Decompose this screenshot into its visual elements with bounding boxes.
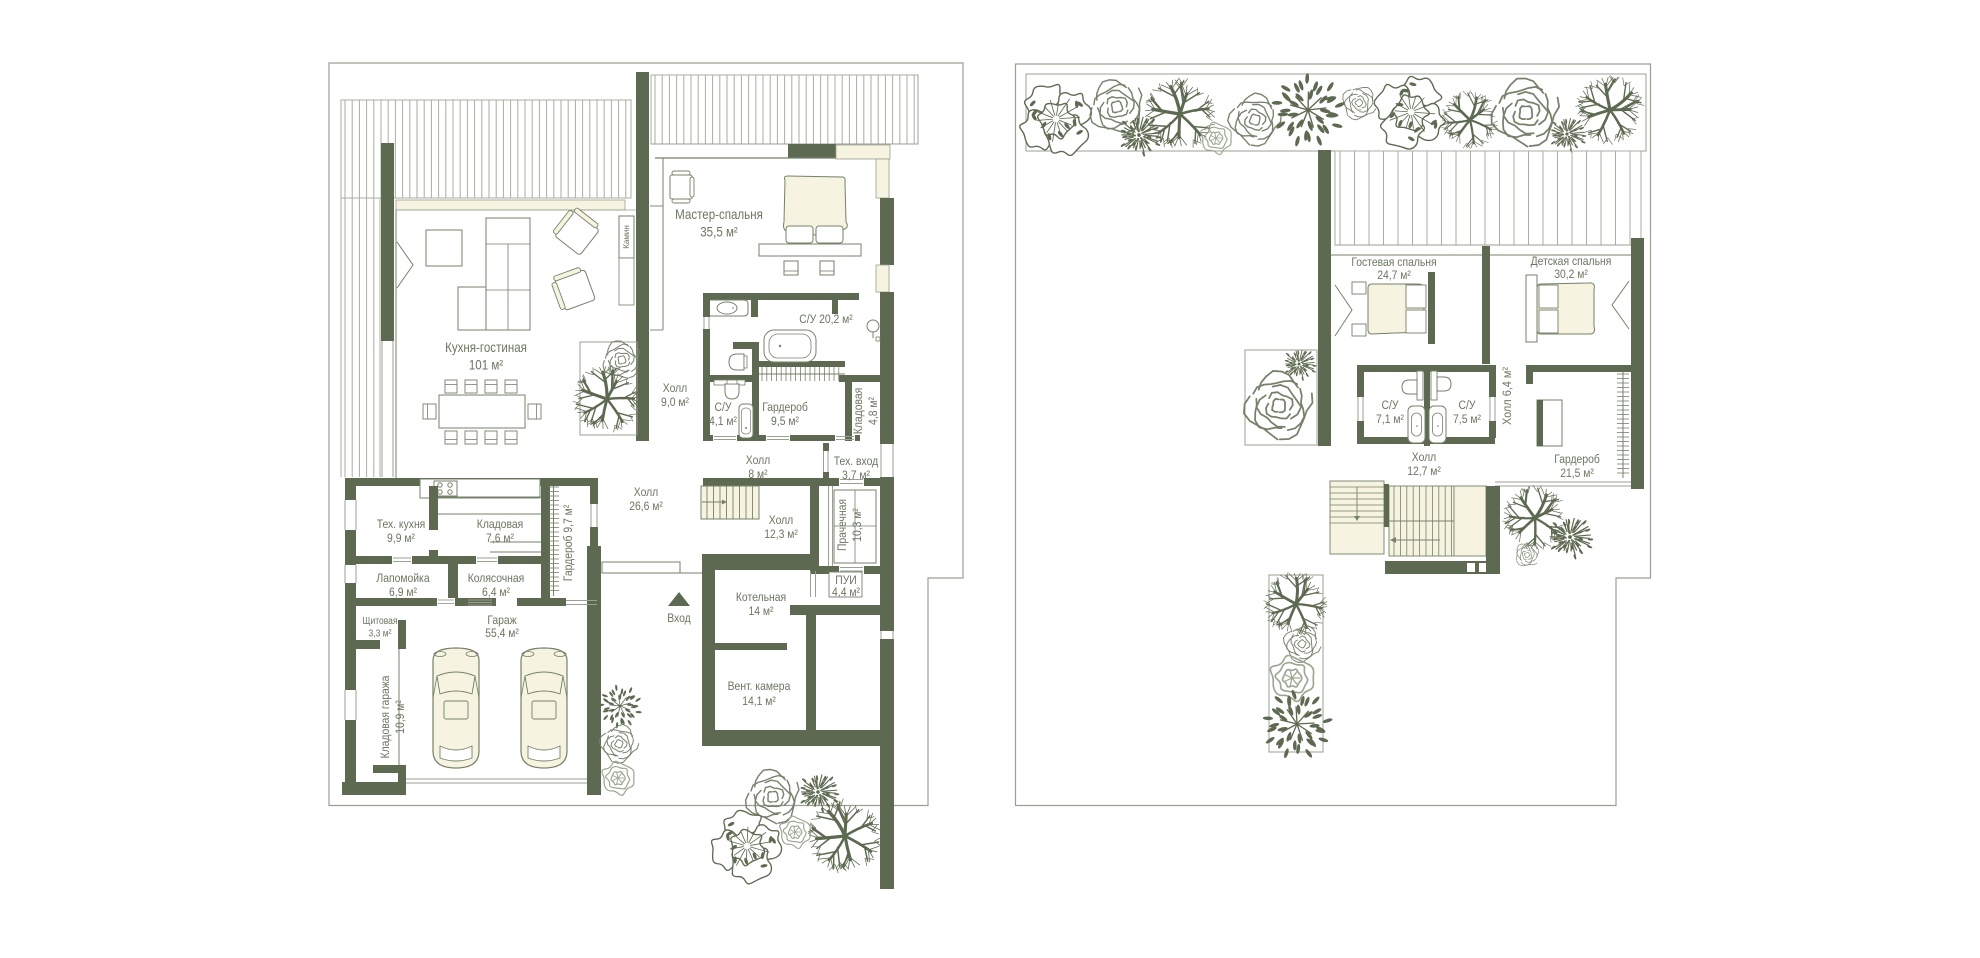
svg-text:Камин: Камин [622, 225, 631, 249]
svg-text:14 м²: 14 м² [749, 604, 774, 618]
svg-text:6,9 м²: 6,9 м² [389, 585, 417, 599]
svg-text:101 м²: 101 м² [469, 358, 504, 373]
svg-text:9,5 м²: 9,5 м² [771, 414, 799, 428]
svg-text:7,5 м²: 7,5 м² [1453, 412, 1481, 426]
svg-text:9,0 м²: 9,0 м² [661, 395, 689, 409]
svg-text:Колясочная: Колясочная [468, 571, 525, 585]
svg-text:Холл 6,4 м²: Холл 6,4 м² [1500, 367, 1514, 425]
svg-text:30,2 м²: 30,2 м² [1554, 267, 1588, 281]
svg-text:7,6 м²: 7,6 м² [486, 531, 514, 545]
svg-text:3,7 м²: 3,7 м² [842, 468, 870, 482]
svg-text:Тех. кухня: Тех. кухня [377, 517, 426, 531]
svg-text:Мастер-спальня: Мастер-спальня [675, 207, 763, 222]
svg-text:4,8 м²: 4,8 м² [866, 397, 880, 425]
svg-text:Тех. вход: Тех. вход [834, 454, 878, 468]
svg-text:35,5 м²: 35,5 м² [700, 225, 738, 240]
svg-text:10,3 м²: 10,3 м² [850, 508, 864, 542]
svg-text:8 м²: 8 м² [748, 467, 767, 481]
svg-text:С/У: С/У [715, 400, 732, 414]
svg-text:12,7 м²: 12,7 м² [1407, 464, 1441, 478]
svg-text:Вент. камера: Вент. камера [728, 679, 791, 693]
svg-text:Гардероб: Гардероб [762, 400, 808, 414]
svg-text:24,7 м²: 24,7 м² [1377, 268, 1411, 282]
svg-text:4,4 м²: 4,4 м² [832, 585, 860, 599]
svg-text:4,1 м²: 4,1 м² [709, 414, 737, 428]
svg-text:Гостевая спальня: Гостевая спальня [1351, 255, 1436, 269]
svg-text:С/У 20,2 м²: С/У 20,2 м² [799, 312, 853, 326]
svg-text:26,6 м²: 26,6 м² [629, 499, 663, 513]
svg-text:Кладовая гаража: Кладовая гаража [378, 675, 392, 758]
svg-text:Щитовая: Щитовая [363, 616, 398, 627]
svg-text:7,1 м²: 7,1 м² [1376, 412, 1404, 426]
svg-text:Кладовая: Кладовая [477, 517, 523, 531]
svg-text:С/У: С/У [1459, 398, 1476, 412]
svg-text:21,5 м²: 21,5 м² [1560, 466, 1594, 480]
svg-text:3,3 м²: 3,3 м² [369, 629, 392, 640]
svg-text:9,9 м²: 9,9 м² [387, 531, 415, 545]
svg-text:12,3 м²: 12,3 м² [764, 527, 798, 541]
svg-text:Холл: Холл [769, 513, 793, 527]
svg-text:14,1 м²: 14,1 м² [742, 694, 776, 708]
svg-text:Холл: Холл [746, 453, 770, 467]
svg-text:Холл: Холл [634, 485, 658, 499]
svg-text:Лапомойка: Лапомойка [376, 571, 429, 585]
svg-text:Холл: Холл [1412, 450, 1436, 464]
svg-text:10,9 м²: 10,9 м² [393, 700, 407, 734]
svg-text:Гараж: Гараж [487, 613, 517, 627]
svg-text:Детская спальня: Детская спальня [1531, 254, 1612, 268]
svg-text:Прачечная: Прачечная [835, 499, 849, 551]
svg-text:Кладовая: Кладовая [851, 388, 865, 434]
svg-text:Кухня-гостиная: Кухня-гостиная [445, 340, 527, 355]
svg-text:Холл: Холл [663, 381, 687, 395]
svg-text:Котельная: Котельная [736, 590, 786, 604]
svg-text:6,4 м²: 6,4 м² [482, 585, 510, 599]
svg-text:Гардероб: Гардероб [1554, 452, 1600, 466]
svg-text:55,4 м²: 55,4 м² [485, 626, 519, 640]
svg-text:С/У: С/У [1382, 398, 1399, 412]
svg-text:Вход: Вход [667, 611, 691, 625]
svg-text:Гардероб 9,7 м²: Гардероб 9,7 м² [561, 505, 575, 581]
